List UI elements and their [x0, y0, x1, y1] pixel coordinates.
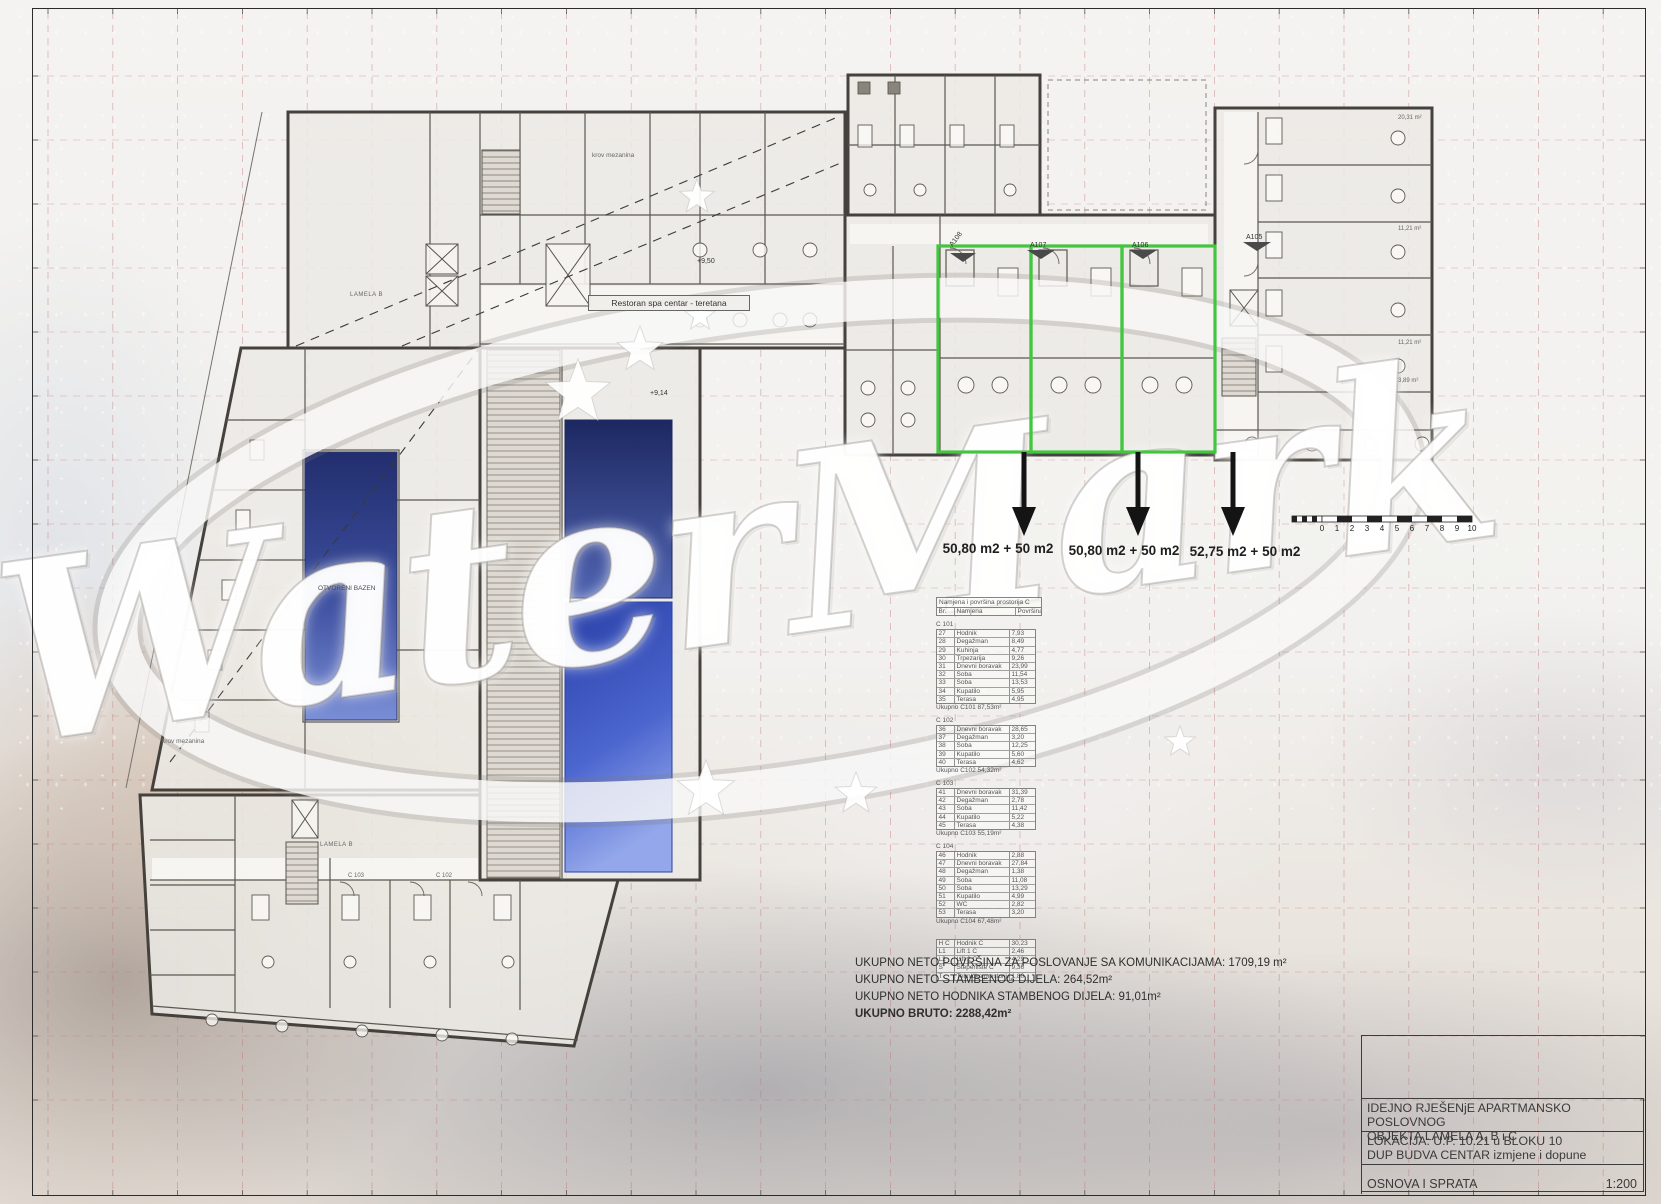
totals-line-4: UKUPNO BRUTO: 2288,42m² [855, 1006, 1315, 1023]
room-table-row: 36Dnevni boravak28,65 [937, 726, 1035, 734]
room-table-row: 34Kupatilo5,95 [937, 688, 1035, 696]
krov-mezanina-label-2: krov mezanina [162, 738, 204, 745]
room-table-section-name: C 103 [936, 780, 1036, 788]
scale-number: 6 [1410, 524, 1414, 533]
room-table-row: 30Trpezarija9,26 [937, 655, 1035, 663]
title-block-box: IDEJNO RJEŠENjE APARTMANSKO POSLOVNOG OB… [1361, 1098, 1644, 1192]
lamela-label-bottom: LAMELA B [320, 842, 353, 848]
room-table-row: 44Kupatilo5,22 [937, 814, 1035, 822]
location-line-2: DUP BUDVA CENTAR izmjene i dopune [1367, 1148, 1643, 1162]
room-table-row: 33Soba13,53 [937, 679, 1035, 687]
room-area-label: 3,89 m² [1398, 378, 1418, 384]
room-table-row: 35Terasa4,95 [937, 696, 1035, 703]
room-area-label: 20,31 m² [1398, 115, 1422, 121]
drawing-name: OSNOVA I SPRATA [1367, 1177, 1477, 1191]
room-table-row: 29Kuhinja4,77 [937, 647, 1035, 655]
room-table-row: 48Degažman1,38 [937, 868, 1035, 876]
room-tables: Namjena i površina prostorija CBr.Namjen… [936, 597, 1042, 981]
scale-number: 3 [1365, 524, 1369, 533]
unit-marker-a105: A105 [1246, 234, 1262, 241]
architectural-drawing-sheet: WaterMark Restoran spa c [0, 0, 1661, 1204]
area-label-unit-2: 50,80 m2 + 50 m2 [1069, 543, 1180, 558]
area-label-unit-1: 50,80 m2 + 50 m2 [943, 541, 1054, 556]
room-table-row: 43Soba11,42 [937, 805, 1035, 813]
room-table-columns: Br.NamjenaPovršina [937, 608, 1041, 615]
room-table-row: 46Hodnik2,88 [937, 852, 1035, 860]
room-table-section-name: C 101 [936, 621, 1036, 629]
room-table-row: 40Terasa4,62 [937, 759, 1035, 766]
room-table-total: Ukupno C104 67,48m² [936, 918, 1036, 926]
unit-label-c103: C 103 [348, 873, 364, 879]
room-table-row: H CHodnik C30,23 [937, 940, 1035, 948]
unit-marker-a107: A107 [1030, 242, 1046, 249]
room-table-section: C 10446Hodnik2,8847Dnevni boravak27,8448… [936, 843, 1036, 926]
room-table-section: C 10127Hodnik7,9328Degažman8,4929Kuhinja… [936, 621, 1036, 712]
unit-marker-a106: A106 [1132, 242, 1148, 249]
otvoreni-bazen-label: OTVORENI BAZEN [318, 585, 375, 592]
scale-number: 5 [1395, 524, 1399, 533]
title-block-project: IDEJNO RJEŠENjE APARTMANSKO POSLOVNOG OB… [1362, 1099, 1643, 1132]
room-area-label: 11,21 m² [1398, 226, 1421, 232]
room-table-header: Namjena i površina prostorija CBr.Namjen… [936, 597, 1042, 616]
room-area-label: 11,21 m² [1398, 340, 1421, 346]
room-table-row: 52WC2,82 [937, 901, 1035, 909]
room-table-row: 32Soba11,54 [937, 671, 1035, 679]
room-table-title: Namjena i površina prostorija C [937, 598, 1041, 608]
scale-number: 2 [1350, 524, 1354, 533]
room-table-section-name: C 104 [936, 843, 1036, 851]
room-table-row: 51Kupatilo4,99 [937, 893, 1035, 901]
scale-number: 4 [1380, 524, 1384, 533]
level-marker-1: +9,50 [697, 258, 715, 265]
room-table-row: 39Kupatilo5,60 [937, 751, 1035, 759]
totals-line-2: UKUPNO NETO STAMBENOG DIJELA: 264,52m² [855, 972, 1315, 989]
room-table-row: 38Soba12,25 [937, 742, 1035, 750]
drawing-scale: 1:200 [1606, 1177, 1637, 1191]
room-table-row: 28Degažman8,49 [937, 638, 1035, 646]
title-block: IDEJNO RJEŠENjE APARTMANSKO POSLOVNOG OB… [1361, 1035, 1646, 1194]
lamela-label-top: LAMELA B [350, 292, 383, 298]
totals-line-3: UKUPNO NETO HODNIKA STAMBENOG DIJELA: 91… [855, 989, 1315, 1006]
room-table-row: 31Dnevni boravak23,99 [937, 663, 1035, 671]
room-table-row: 50Soba13,29 [937, 885, 1035, 893]
project-line-1: IDEJNO RJEŠENjE APARTMANSKO POSLOVNOG [1367, 1101, 1643, 1129]
level-marker-2: +9,14 [650, 390, 668, 397]
area-label-unit-3: 52,75 m2 + 50 m2 [1190, 544, 1301, 559]
room-table-section: C 10236Dnevni boravak28,6537Degažman3,20… [936, 717, 1036, 775]
room-table-row: 53Terasa3,20 [937, 909, 1035, 916]
room-table-row: 27Hodnik7,93 [937, 630, 1035, 638]
restoran-spa-label: Restoran spa centar - teretana [588, 295, 750, 311]
totals-line-1: UKUPNO NETO POVRŠINA ZA POSLOVANJE SA KO… [855, 955, 1315, 972]
scale-number: 9 [1455, 524, 1459, 533]
room-table-row: 37Degažman3,20 [937, 734, 1035, 742]
scale-number: 8 [1440, 524, 1444, 533]
sheet-border-frame [32, 8, 1646, 1196]
room-table-section: C 10341Dnevni boravak31,3942Degažman2,78… [936, 780, 1036, 838]
totals-block: UKUPNO NETO POVRŠINA ZA POSLOVANJE SA KO… [855, 955, 1315, 1023]
room-table-row: 47Dnevni boravak27,84 [937, 860, 1035, 868]
room-table-row: 49Soba11,08 [937, 877, 1035, 885]
room-table-total: Ukupno C102 54,32m² [936, 767, 1036, 775]
location-line-1: LOKACIJA: U.P. 10.21 u BLOKU 10 [1367, 1134, 1643, 1148]
room-table-row: 45Terasa4,38 [937, 822, 1035, 829]
scale-number: 7 [1425, 524, 1429, 533]
room-table-total: Ukupno C103 55,19m² [936, 830, 1036, 838]
room-table-section-name: C 102 [936, 717, 1036, 725]
title-block-location: LOKACIJA: U.P. 10.21 u BLOKU 10 DUP BUDV… [1362, 1132, 1643, 1165]
krov-mezanina-label-1: krov mezanina [592, 152, 634, 159]
room-table-row: 42Degažman2,78 [937, 797, 1035, 805]
scale-number: 10 [1468, 524, 1477, 533]
scale-number: 1 [1335, 524, 1339, 533]
unit-label-c102: C 102 [436, 873, 452, 879]
room-table-row: 41Dnevni boravak31,39 [937, 789, 1035, 797]
room-table-total: Ukupno C101 87,53m² [936, 704, 1036, 712]
scale-number: 0 [1320, 524, 1324, 533]
title-block-drawing: OSNOVA I SPRATA 1:200 [1362, 1165, 1643, 1195]
